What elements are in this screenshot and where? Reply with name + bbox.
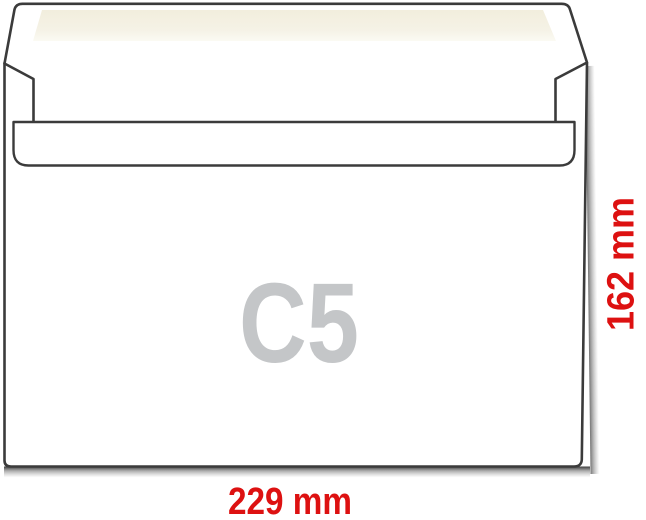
height-dimension-label: 162 mm (601, 197, 643, 331)
seal-strip (14, 122, 575, 166)
bottom-drop-shadow (4, 467, 590, 478)
envelope-size-diagram: C5 229 mm 162 mm (0, 0, 646, 520)
envelope-diagram-canvas: C5 229 mm 162 mm (0, 0, 646, 520)
format-label: C5 (239, 260, 359, 386)
width-dimension-label: 229 mm (228, 481, 352, 520)
adhesive-strip (33, 10, 556, 41)
